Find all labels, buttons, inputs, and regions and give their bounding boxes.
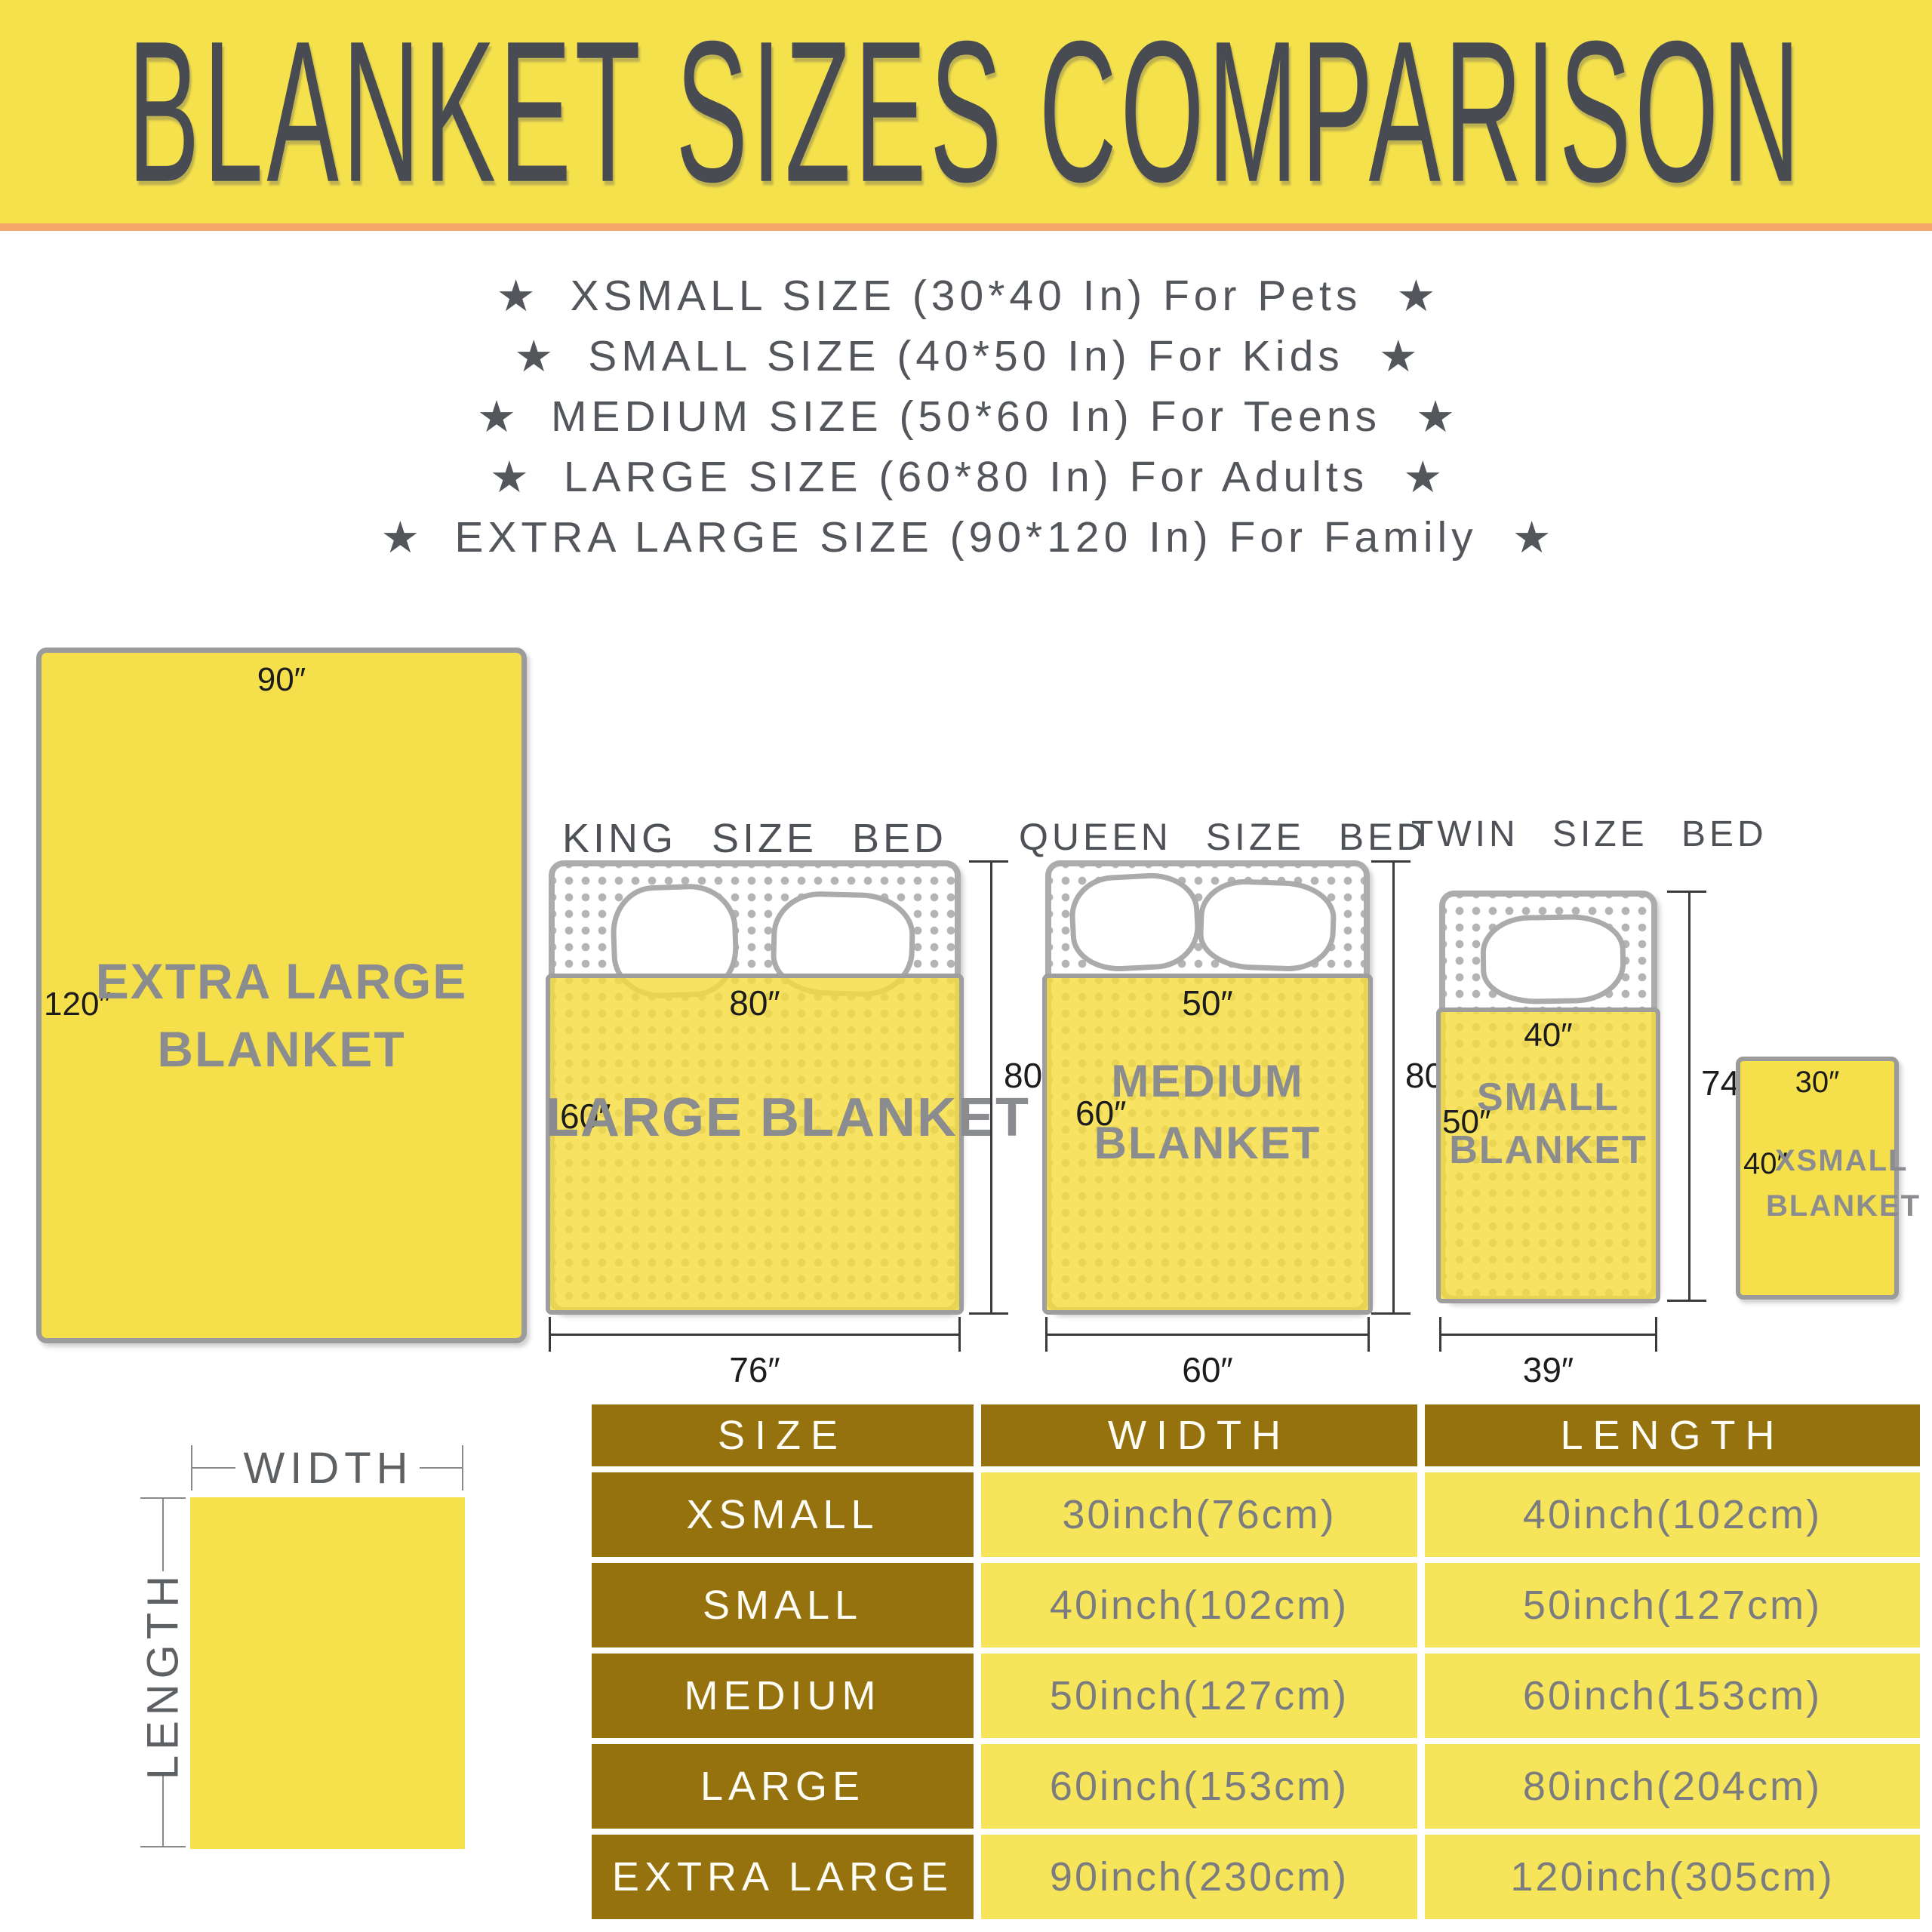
queen-width-dim-line bbox=[1045, 1334, 1370, 1336]
king-height-dim-line bbox=[990, 862, 992, 1315]
twin-width-dim-line bbox=[1439, 1334, 1657, 1336]
header-accent-line bbox=[0, 223, 1932, 231]
xl-blanket-name-line2: BLANKET bbox=[36, 1020, 527, 1078]
legend-length-label: LENGTH bbox=[138, 1555, 189, 1796]
xsmall-width-label: 30″ bbox=[1736, 1066, 1899, 1100]
queen-dim-tick-bottom bbox=[1371, 1312, 1411, 1315]
table-header-width: WIDTH bbox=[981, 1404, 1417, 1466]
star-icon: ★ bbox=[1403, 451, 1442, 503]
king-dim-tick-top bbox=[969, 860, 1008, 863]
queen-width-tick-right bbox=[1367, 1317, 1370, 1352]
xl-blanket-name-line1: EXTRA LARGE bbox=[36, 952, 527, 1010]
small-blanket-name-line1: SMALL bbox=[1436, 1075, 1660, 1120]
size-list-text: SMALL SIZE (40*50 In) For Kids bbox=[588, 331, 1344, 381]
twin-dim-tick-bottom bbox=[1667, 1300, 1706, 1302]
star-icon: ★ bbox=[514, 331, 553, 382]
table-row-xsmall-length: 40inch(102cm) bbox=[1425, 1472, 1920, 1557]
page-title: BLANKET SIZES COMPARISON bbox=[128, 0, 1804, 227]
queen-pillow-left bbox=[1068, 871, 1202, 974]
queen-bed-title: QUEEN SIZE BED bbox=[1019, 815, 1396, 859]
star-icon: ★ bbox=[490, 451, 529, 503]
medium-blanket-name-line1: MEDIUM bbox=[1042, 1055, 1373, 1107]
medium-blanket-width-label: 50″ bbox=[1042, 983, 1373, 1023]
twin-width-tick-right bbox=[1655, 1317, 1657, 1352]
size-table: SIZE WIDTH LENGTH XSMALL 30inch(76cm) 40… bbox=[592, 1404, 1920, 1919]
king-width-dim-line bbox=[549, 1334, 961, 1336]
large-blanket-name: LARGE BLANKET bbox=[546, 1087, 964, 1149]
xsmall-blanket-name-line1: XSMALL bbox=[1775, 1144, 1899, 1178]
blanket-sizes-infographic: BLANKET SIZES COMPARISON ★ XSMALL SIZE (… bbox=[0, 0, 1932, 1932]
star-icon: ★ bbox=[497, 270, 536, 321]
star-icon: ★ bbox=[380, 512, 420, 563]
table-row-large-size: LARGE bbox=[592, 1744, 974, 1829]
medium-blanket-name-line2: BLANKET bbox=[1042, 1117, 1373, 1169]
table-header-size: SIZE bbox=[592, 1404, 974, 1466]
size-list-text: EXTRA LARGE SIZE (90*120 In) For Family bbox=[454, 512, 1477, 562]
legend-width-label: WIDTH bbox=[211, 1443, 445, 1494]
table-row-large-width: 60inch(153cm) bbox=[981, 1744, 1417, 1829]
header-banner: BLANKET SIZES COMPARISON bbox=[0, 0, 1932, 223]
twin-width-tick-left bbox=[1439, 1317, 1441, 1352]
table-row-extra-large-size: EXTRA LARGE bbox=[592, 1835, 974, 1919]
size-list-text: LARGE SIZE (60*80 In) For Adults bbox=[564, 452, 1368, 502]
table-row-medium-length: 60inch(153cm) bbox=[1425, 1654, 1920, 1738]
twin-pillow bbox=[1480, 913, 1626, 1004]
queen-bed-width-label: 60″ bbox=[1045, 1349, 1370, 1390]
star-icon: ★ bbox=[1416, 391, 1455, 442]
table-row-small-size: SMALL bbox=[592, 1563, 974, 1647]
size-list-item-large: ★ LARGE SIZE (60*80 In) For Adults ★ bbox=[0, 447, 1932, 507]
size-list-item-small: ★ SMALL SIZE (40*50 In) For Kids ★ bbox=[0, 326, 1932, 386]
star-icon: ★ bbox=[1396, 270, 1435, 321]
queen-height-dim-line bbox=[1392, 862, 1395, 1315]
table-row-xsmall-size: XSMALL bbox=[592, 1472, 974, 1557]
table-row-large-length: 80inch(204cm) bbox=[1425, 1744, 1920, 1829]
small-blanket-name-line2: BLANKET bbox=[1436, 1128, 1660, 1173]
size-list-text: MEDIUM SIZE (50*60 In) For Teens bbox=[551, 392, 1381, 441]
star-icon: ★ bbox=[1512, 512, 1552, 563]
table-row-extra-large-length: 120inch(305cm) bbox=[1425, 1835, 1920, 1919]
size-list-item-xsmall: ★ XSMALL SIZE (30*40 In) For Pets ★ bbox=[0, 266, 1932, 326]
table-header-length: LENGTH bbox=[1425, 1404, 1920, 1466]
king-dim-tick-bottom bbox=[969, 1312, 1008, 1315]
table-row-small-width: 40inch(102cm) bbox=[981, 1563, 1417, 1647]
king-width-tick-right bbox=[958, 1317, 961, 1352]
table-row-small-length: 50inch(127cm) bbox=[1425, 1563, 1920, 1647]
star-icon: ★ bbox=[1379, 331, 1418, 382]
king-bed-title: KING SIZE BED bbox=[528, 815, 981, 862]
size-list-item-medium: ★ MEDIUM SIZE (50*60 In) For Teens ★ bbox=[0, 386, 1932, 447]
queen-pillow-right bbox=[1197, 878, 1337, 973]
table-row-xsmall-width: 30inch(76cm) bbox=[981, 1472, 1417, 1557]
twin-bed-title: TWIN SIZE BED bbox=[1411, 814, 1683, 855]
twin-dim-tick-top bbox=[1667, 891, 1706, 893]
xl-width-label: 90″ bbox=[36, 661, 527, 699]
size-list-item-extra-large: ★ EXTRA LARGE SIZE (90*120 In) For Famil… bbox=[0, 507, 1932, 568]
twin-bed-width-label: 39″ bbox=[1439, 1349, 1657, 1390]
size-list-text: XSMALL SIZE (30*40 In) For Pets bbox=[571, 271, 1362, 321]
twin-height-dim-line bbox=[1688, 892, 1690, 1302]
table-row-extra-large-width: 90inch(230cm) bbox=[981, 1835, 1417, 1919]
queen-width-tick-left bbox=[1045, 1317, 1048, 1352]
small-blanket-width-label: 40″ bbox=[1436, 1017, 1660, 1054]
table-row-medium-width: 50inch(127cm) bbox=[981, 1654, 1417, 1738]
legend-blanket-shape bbox=[190, 1497, 465, 1849]
queen-dim-tick-top bbox=[1371, 860, 1411, 863]
star-icon: ★ bbox=[477, 391, 516, 442]
xsmall-blanket-name-line2: BLANKET bbox=[1766, 1189, 1899, 1223]
large-blanket-width-label: 80″ bbox=[546, 983, 964, 1023]
king-width-tick-left bbox=[549, 1317, 551, 1352]
king-bed-width-label: 76″ bbox=[549, 1349, 961, 1390]
table-row-medium-size: MEDIUM bbox=[592, 1654, 974, 1738]
